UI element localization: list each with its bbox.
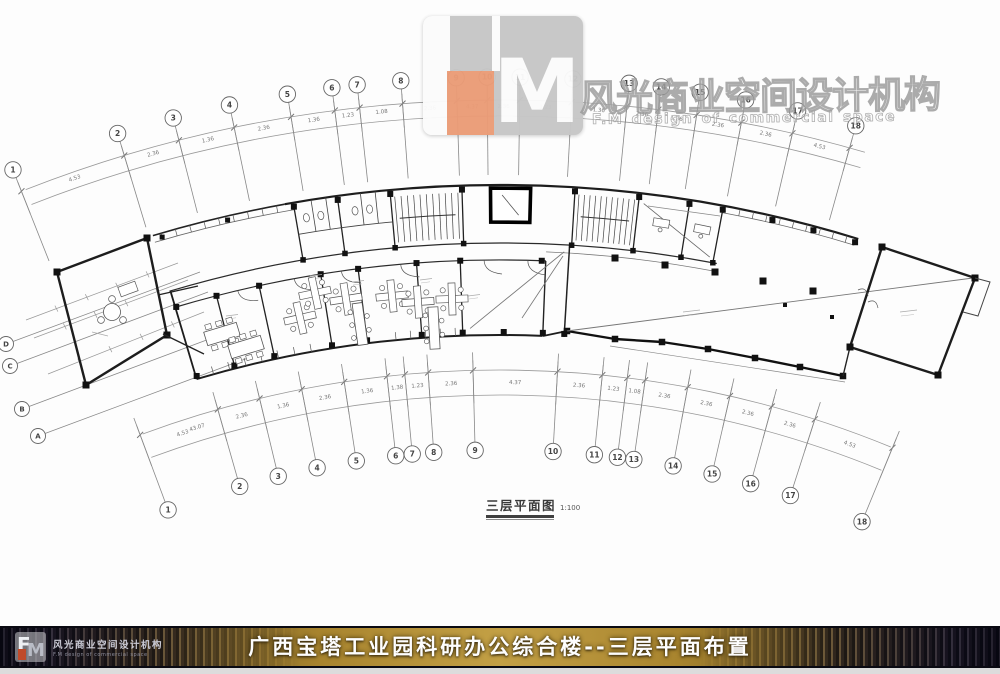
plan-scale-label: 1:100: [560, 504, 580, 512]
svg-text:17: 17: [785, 491, 795, 500]
svg-text:3: 3: [171, 114, 176, 123]
caption-underline-thin: [486, 519, 554, 520]
footer-fm-m-letter: M: [27, 640, 45, 661]
svg-text:1.38: 1.38: [391, 385, 404, 392]
plan-caption: 三层平面图 1:100: [486, 495, 580, 520]
svg-text:1.23: 1.23: [607, 386, 620, 393]
bottom-margin: [0, 668, 1000, 674]
svg-text:6: 6: [329, 83, 334, 92]
svg-text:18: 18: [857, 517, 867, 526]
svg-text:1.36: 1.36: [361, 388, 374, 396]
svg-text:2.36: 2.36: [783, 421, 797, 430]
svg-text:7: 7: [410, 450, 415, 459]
svg-text:15: 15: [707, 470, 717, 479]
svg-text:2.36: 2.36: [257, 125, 271, 133]
footer-fm-logo: F M: [15, 632, 46, 662]
svg-text:4: 4: [227, 101, 232, 110]
svg-text:C: C: [7, 363, 12, 371]
svg-text:3: 3: [276, 472, 281, 481]
footer-fm-red-block: [18, 649, 26, 660]
footer-brand-chinese: 风光商业空间设计机构: [53, 637, 163, 651]
svg-text:13: 13: [629, 455, 639, 464]
svg-text:1.23: 1.23: [342, 112, 355, 119]
svg-text:1.36: 1.36: [307, 117, 320, 125]
plan-caption-text: 三层平面图: [486, 495, 556, 514]
svg-text:8: 8: [431, 448, 436, 457]
svg-text:1.23: 1.23: [411, 383, 424, 390]
svg-text:B: B: [19, 406, 24, 414]
svg-text:1.08: 1.08: [375, 109, 388, 116]
svg-text:1.36: 1.36: [277, 402, 291, 411]
svg-text:7: 7: [355, 80, 360, 89]
fm-logo-m-letter: M: [489, 44, 585, 139]
svg-text:2.36: 2.36: [700, 400, 714, 408]
svg-text:11: 11: [589, 450, 599, 459]
svg-text:10: 10: [548, 447, 558, 456]
svg-text:1: 1: [10, 166, 15, 175]
svg-text:16: 16: [745, 479, 755, 488]
svg-text:4.53: 4.53: [68, 174, 82, 184]
fm-logo-notch: [423, 111, 447, 135]
svg-text:2.36: 2.36: [147, 150, 161, 159]
svg-text:4.53: 4.53: [176, 429, 190, 439]
fm-logo-watermark: M: [423, 16, 583, 135]
svg-text:2.36: 2.36: [235, 412, 249, 421]
caption-underline-thick: [486, 515, 554, 518]
svg-text:4: 4: [314, 463, 319, 472]
svg-text:8: 8: [398, 76, 403, 85]
svg-text:A: A: [35, 433, 41, 441]
svg-text:1.08: 1.08: [628, 388, 641, 396]
svg-text:5: 5: [285, 90, 290, 99]
svg-text:5: 5: [354, 457, 359, 466]
svg-text:43.07: 43.07: [189, 423, 206, 434]
fm-logo-orange-block: [447, 71, 494, 135]
svg-text:2.36: 2.36: [658, 392, 672, 400]
svg-text:1: 1: [165, 505, 170, 514]
svg-text:6: 6: [393, 451, 398, 460]
svg-text:2.36: 2.36: [445, 381, 458, 388]
furniture-layer: [98, 205, 711, 365]
svg-text:D: D: [3, 341, 9, 349]
footer-brand: 风光商业空间设计机构 F.M design of commercial spac…: [53, 637, 163, 658]
svg-text:1.36: 1.36: [201, 136, 215, 145]
title-banner: 广西宝塔工业园科研办公综合楼--三层平面布置 F M 风光商业空间设计机构 F.…: [0, 626, 1000, 668]
svg-text:2: 2: [237, 482, 242, 491]
page: 4.532.361.362.361.361.231.082.364.372.36…: [0, 0, 1000, 674]
svg-text:9: 9: [473, 446, 478, 455]
svg-text:2.36: 2.36: [741, 409, 755, 418]
building-layer: [54, 185, 991, 389]
svg-text:2: 2: [115, 129, 120, 138]
svg-text:4.37: 4.37: [509, 380, 522, 386]
footer-brand-english: F.M design of commercial space: [53, 652, 163, 658]
svg-text:4.53: 4.53: [813, 143, 827, 152]
svg-text:2.36: 2.36: [319, 394, 333, 402]
svg-text:12: 12: [612, 453, 622, 462]
svg-text:14: 14: [668, 462, 678, 471]
svg-text:2.36: 2.36: [573, 383, 586, 390]
svg-text:4.53: 4.53: [843, 440, 857, 450]
svg-text:2.36: 2.36: [759, 130, 773, 138]
